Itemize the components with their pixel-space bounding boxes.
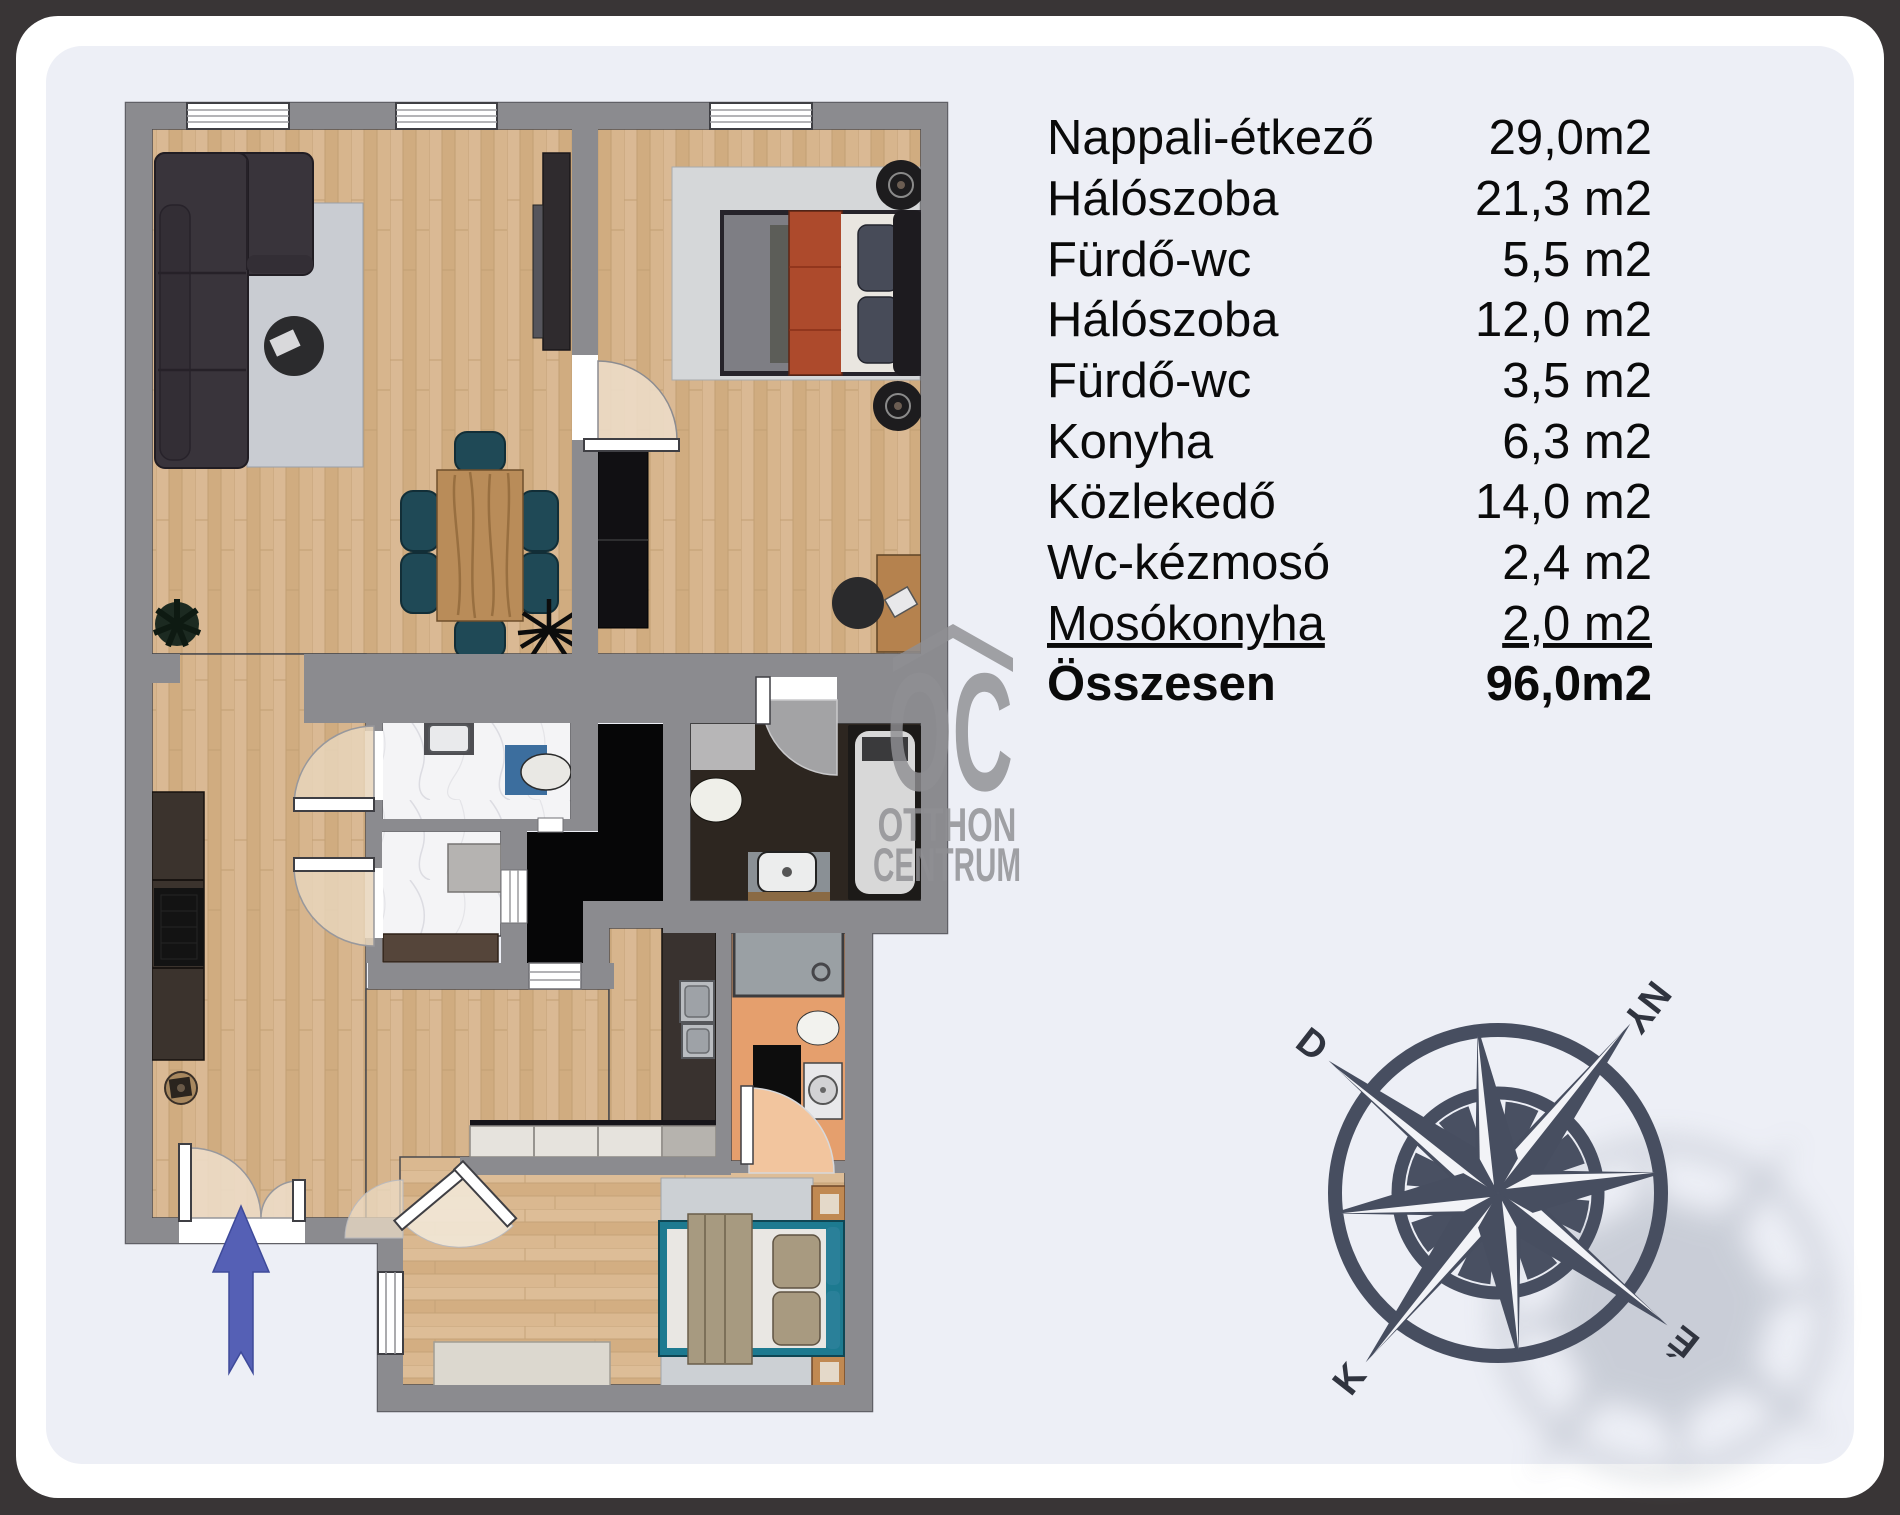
svg-text:NY: NY [1613, 973, 1679, 1040]
svg-text:21,3 m2: 21,3 m2 [1475, 172, 1652, 226]
svg-text:Konyha: Konyha [1047, 415, 1214, 469]
svg-text:Fürdő-wc: Fürdő-wc [1047, 233, 1251, 287]
svg-text:Közlekedő: Közlekedő [1047, 475, 1276, 529]
svg-text:K: K [1325, 1355, 1375, 1403]
svg-text:Wc-kézmosó: Wc-kézmosó [1047, 536, 1330, 590]
svg-text:2,0 m2: 2,0 m2 [1502, 597, 1652, 651]
svg-text:6,3 m2: 6,3 m2 [1502, 415, 1652, 469]
svg-text:Mosókonyha: Mosókonyha [1047, 597, 1326, 651]
svg-text:Fürdő-wc: Fürdő-wc [1047, 354, 1251, 408]
svg-text:CENTRUM: CENTRUM [873, 839, 1021, 892]
svg-text:Nappali-étkező: Nappali-étkező [1047, 111, 1374, 165]
svg-text:Hálószoba: Hálószoba [1047, 293, 1279, 347]
svg-text:5,5 m2: 5,5 m2 [1502, 233, 1652, 287]
svg-text:Összesen: Összesen [1047, 657, 1276, 711]
svg-text:2,4 m2: 2,4 m2 [1502, 536, 1652, 590]
svg-text:D: D [1288, 1020, 1335, 1070]
svg-text:3,5 m2: 3,5 m2 [1502, 354, 1652, 408]
svg-text:96,0m2: 96,0m2 [1486, 657, 1652, 711]
svg-text:14,0 m2: 14,0 m2 [1475, 475, 1652, 529]
svg-text:29,0m2: 29,0m2 [1489, 111, 1652, 165]
svg-text:Hálószoba: Hálószoba [1047, 172, 1279, 226]
svg-text:12,0 m2: 12,0 m2 [1475, 293, 1652, 347]
